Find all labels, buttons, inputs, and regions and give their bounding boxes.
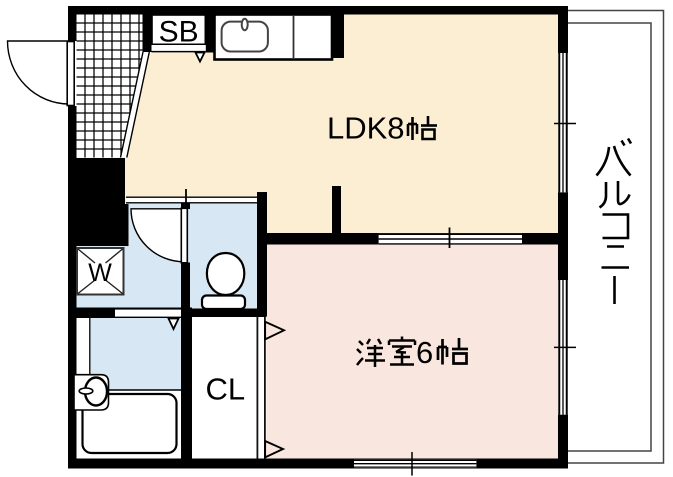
svg-text:6: 6 <box>416 335 433 370</box>
svg-text:SB: SB <box>159 15 199 48</box>
svg-text:W: W <box>88 259 112 287</box>
svg-text:CL: CL <box>205 372 245 407</box>
svg-text:LDK8: LDK8 <box>327 111 405 146</box>
